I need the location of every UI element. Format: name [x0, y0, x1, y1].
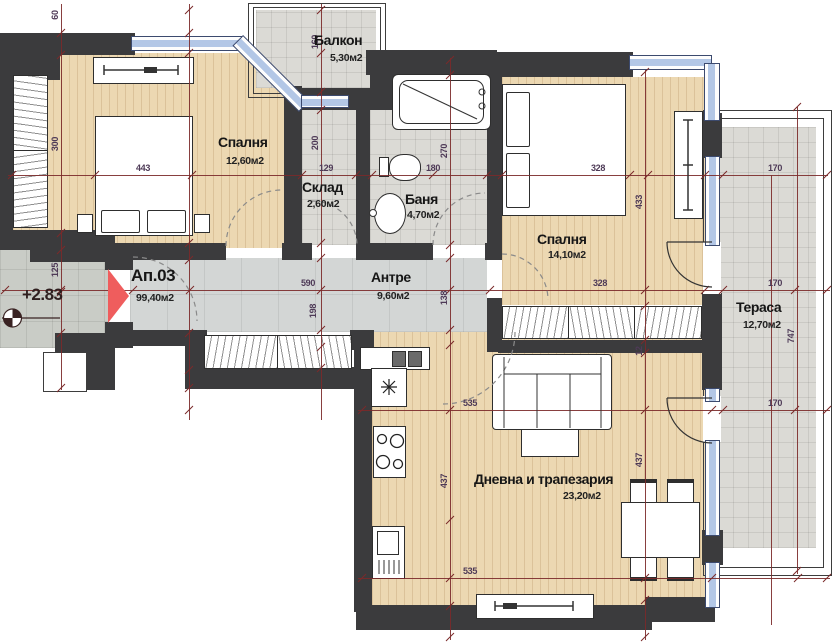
room-area-hallway: 9,60м2: [377, 290, 409, 302]
dimension-label: 437: [439, 465, 449, 497]
window: [704, 63, 720, 121]
entry-step: [43, 352, 87, 392]
dimension-label: 328: [576, 163, 620, 173]
tv-cabinet: [476, 594, 594, 619]
room-area-bathroom: 4,70м2: [407, 209, 439, 221]
dimension-line: [450, 58, 451, 640]
dimension-label: 60: [50, 0, 60, 31]
wardrobe: [204, 335, 278, 369]
dimension-label: 535: [448, 398, 492, 408]
stove: [373, 426, 406, 478]
room-area-living: 23,20м2: [563, 490, 601, 502]
wall-segment: [702, 293, 722, 390]
room-area-balcony: 5,30м2: [330, 52, 362, 64]
apartment-area: 99,40м2: [136, 292, 174, 304]
dimension-label: 12: [634, 335, 644, 367]
wardrobe: [277, 335, 352, 369]
toilet-tank: [379, 157, 389, 177]
window: [705, 388, 720, 402]
dimension-label: 170: [753, 163, 797, 173]
room-name-bedroom1: Спалня: [218, 134, 267, 150]
wall-segment: [356, 243, 433, 260]
dimension-label: 200: [310, 127, 320, 159]
pillow: [147, 210, 186, 233]
room-area-bedroom1: 12,60м2: [226, 155, 264, 167]
window: [629, 55, 712, 70]
dimension-line: [2, 290, 830, 291]
room-name-terrace: Тераса: [736, 299, 781, 315]
kitchen-sink-basin: [392, 351, 406, 367]
dimension-line: [358, 578, 830, 579]
door-opening: [703, 396, 721, 442]
pillow: [101, 210, 140, 233]
wall-segment: [356, 92, 370, 245]
dimension-line: [645, 70, 646, 640]
dimension-label: 433: [634, 186, 644, 218]
window: [705, 562, 720, 608]
dimension-label: 437: [634, 444, 644, 476]
dimension-label: 747: [786, 320, 796, 352]
wardrobe: [502, 306, 569, 339]
wall-segment: [354, 350, 372, 612]
dimension-label: 125: [50, 254, 60, 286]
dimension-label: 270: [439, 135, 449, 167]
apartment-number: Ап.03: [131, 266, 175, 286]
dimension-label: 328: [578, 278, 622, 288]
dimension-line: [797, 107, 798, 574]
wall-segment: [85, 350, 115, 390]
room-area-storage: 2,60м2: [307, 198, 339, 210]
elevation-value: +2.83: [22, 285, 63, 305]
dimension-label: 129: [304, 163, 348, 173]
wardrobe: [568, 306, 635, 339]
dimension-label: 590: [286, 278, 330, 288]
dimension-line: [8, 175, 828, 176]
kitchen-sink-basin: [408, 351, 422, 367]
dresser: [93, 57, 194, 84]
coffee-table: [521, 429, 579, 457]
room-name-storage: Склад: [302, 179, 343, 195]
wall-segment: [366, 50, 497, 75]
wall-segment: [0, 33, 135, 55]
door-opening: [703, 242, 721, 294]
room-name-hallway: Антре: [371, 269, 411, 285]
wall-segment: [282, 243, 312, 260]
room-area-terrace: 12,70м2: [743, 319, 781, 331]
dimension-line: [189, 4, 190, 420]
dimension-label: 170: [753, 398, 797, 408]
entrance-arrow: [108, 269, 129, 323]
radiator: [674, 111, 703, 219]
dimension-line: [61, 4, 62, 390]
room-name-living: Дневна и трапезария: [474, 471, 613, 487]
nightstand: [194, 214, 210, 233]
room-name-bedroom2: Спалня: [537, 231, 586, 247]
dining-table: [621, 502, 700, 558]
wardrobe: [13, 75, 48, 152]
dimension-label: 443: [121, 163, 165, 173]
wardrobe: [13, 150, 48, 228]
fridge-compartment: [377, 531, 399, 555]
sofa: [492, 354, 612, 430]
wall-segment: [185, 367, 380, 389]
dimension-label: 535: [448, 566, 492, 576]
dimension-label: 170: [753, 278, 797, 288]
dimension-label: 138: [439, 282, 449, 314]
dimension-line: [321, 4, 322, 420]
sink: [374, 193, 406, 234]
room-area-bedroom2: 14,10м2: [548, 249, 586, 261]
window: [705, 156, 720, 246]
wall-segment: [105, 250, 133, 270]
floor-plan: 60 300 125 443 129 180 328 170 160 200 1…: [0, 0, 835, 643]
window: [131, 36, 242, 51]
pillow: [506, 92, 530, 147]
wall-segment: [30, 248, 115, 262]
terrace-floor: [718, 127, 816, 548]
room-name-bathroom: Баня: [405, 191, 438, 207]
window: [705, 440, 720, 536]
pillow: [506, 153, 530, 208]
dimension-line: [358, 410, 830, 411]
wall-segment: [498, 340, 706, 353]
wall-segment: [487, 52, 633, 77]
dimension-label: 300: [50, 128, 60, 160]
kitchen-counter: [371, 368, 407, 407]
room-name-balcony: Балкон: [314, 32, 362, 48]
bathtub-basin: [399, 80, 484, 124]
dimension-label: 198: [308, 295, 318, 327]
nightstand: [77, 214, 93, 233]
window: [301, 95, 349, 108]
